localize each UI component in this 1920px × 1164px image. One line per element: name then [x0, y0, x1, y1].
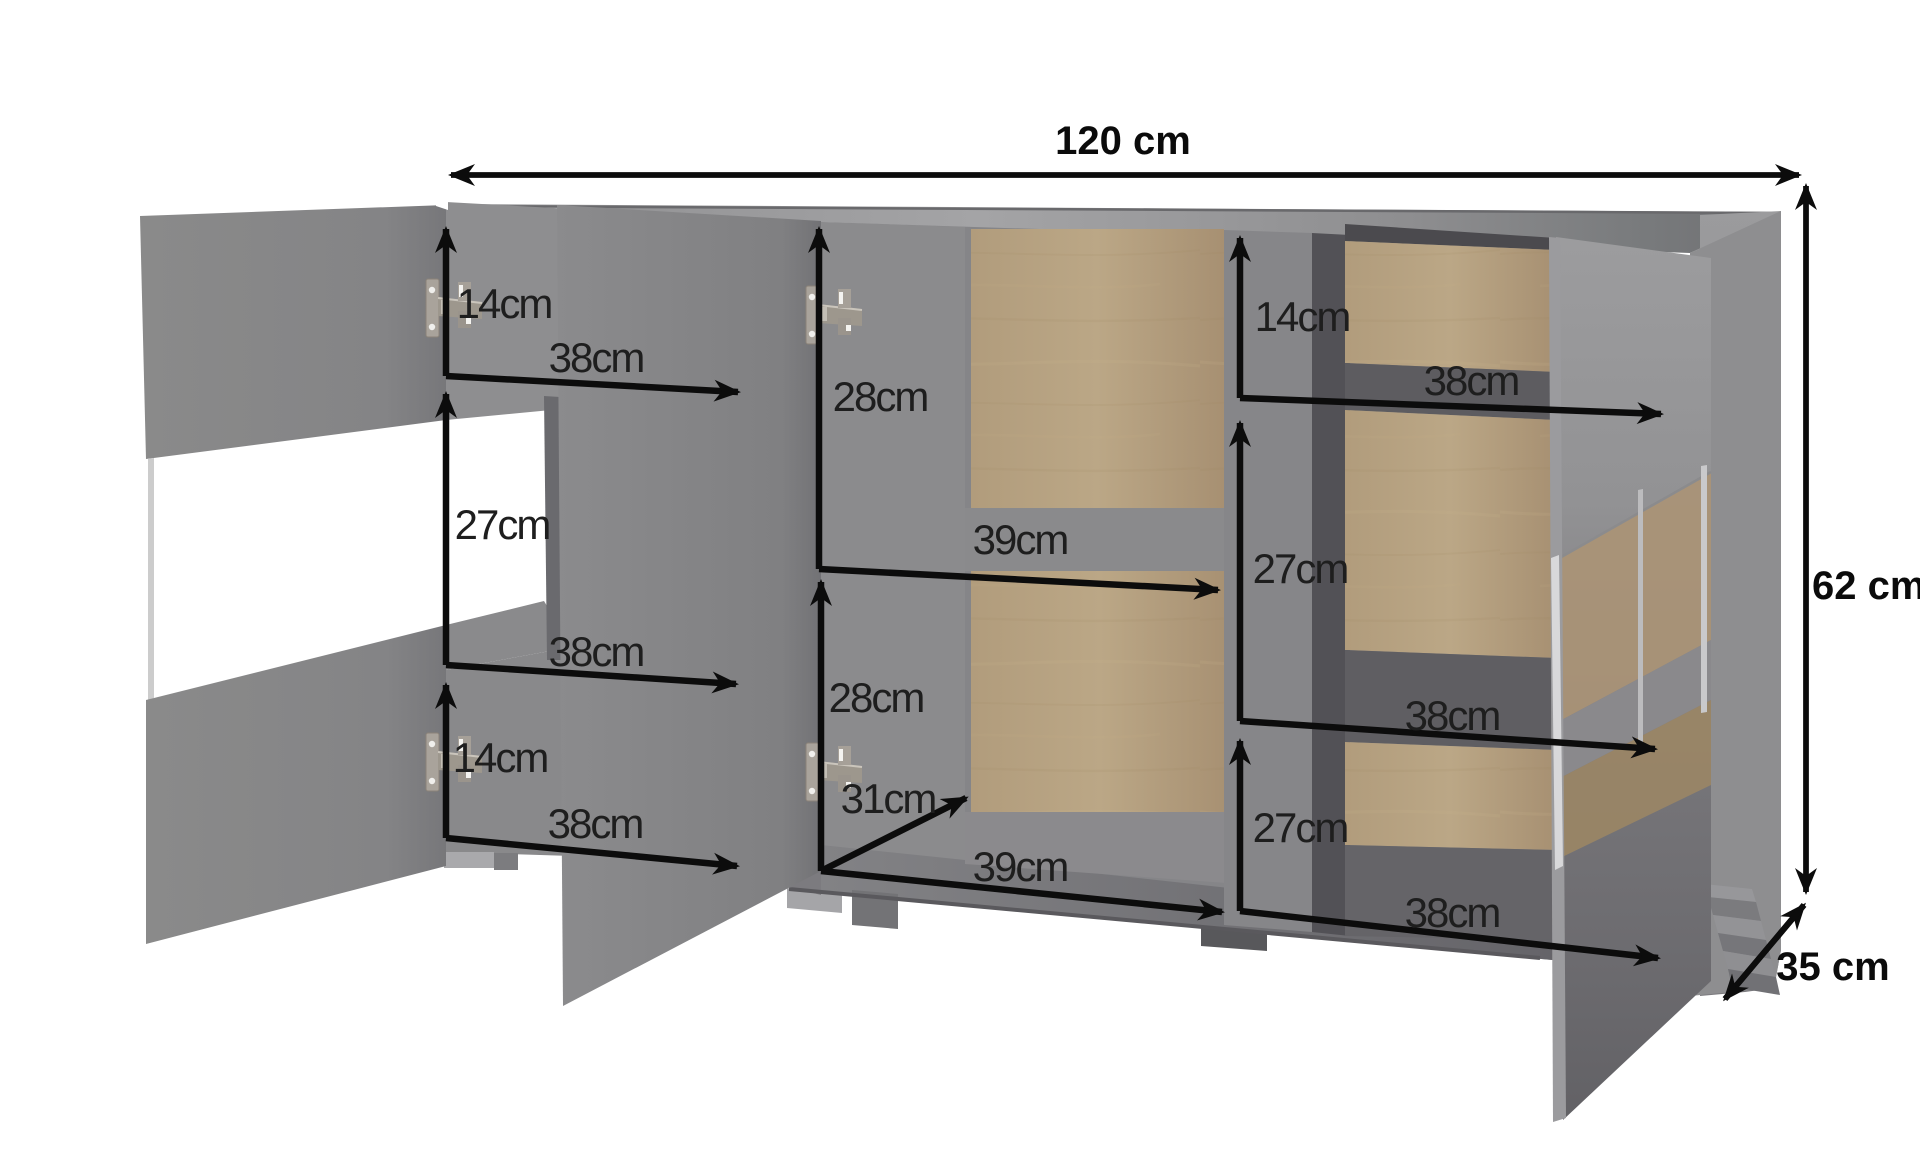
svg-text:39cm: 39cm [973, 516, 1068, 563]
svg-text:38cm: 38cm [549, 628, 644, 675]
svg-text:38cm: 38cm [549, 334, 644, 381]
svg-text:27cm: 27cm [1253, 545, 1348, 592]
svg-text:62 cm: 62 cm [1812, 564, 1920, 608]
svg-text:28cm: 28cm [833, 373, 928, 420]
svg-text:27cm: 27cm [455, 501, 550, 548]
svg-text:38cm: 38cm [1424, 357, 1519, 404]
svg-text:38cm: 38cm [1405, 692, 1500, 739]
svg-text:27cm: 27cm [1253, 804, 1348, 851]
svg-text:14cm: 14cm [453, 734, 548, 781]
svg-text:38cm: 38cm [548, 800, 643, 847]
svg-text:38cm: 38cm [1405, 889, 1500, 936]
svg-text:28cm: 28cm [829, 674, 924, 721]
svg-text:35 cm: 35 cm [1776, 945, 1889, 989]
svg-text:120 cm: 120 cm [1055, 119, 1191, 163]
svg-text:31cm: 31cm [841, 775, 936, 822]
svg-text:14cm: 14cm [1255, 293, 1350, 340]
svg-text:39cm: 39cm [973, 843, 1068, 890]
svg-text:14cm: 14cm [457, 280, 552, 327]
